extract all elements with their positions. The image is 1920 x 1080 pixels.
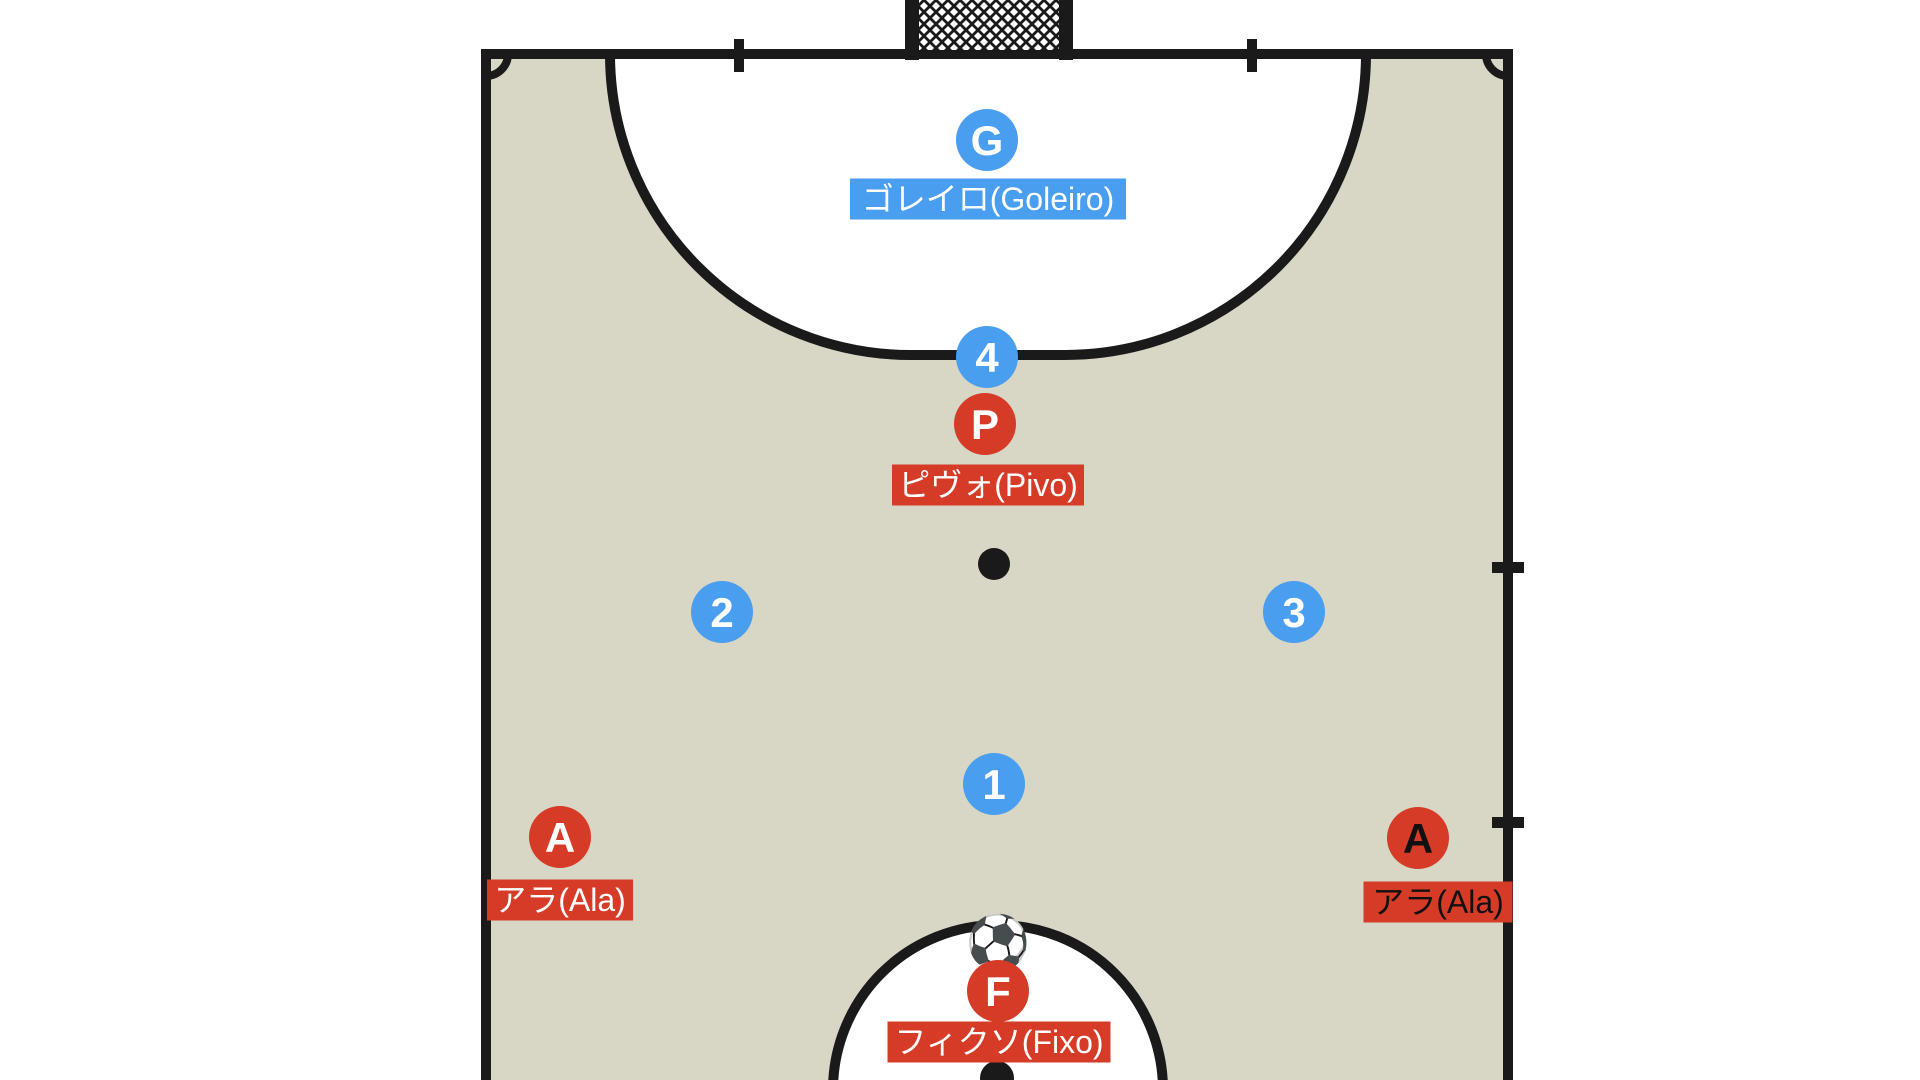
player-marker-letter: A <box>545 814 575 861</box>
center-spot <box>978 548 1010 580</box>
player-marker-number-2: 2 <box>691 581 753 643</box>
position-label-ala-left: アラ(Ala) <box>487 880 633 921</box>
touchline-tick-upper <box>1492 562 1524 573</box>
position-label-text: アラ(Ala) <box>1372 884 1504 920</box>
player-marker-letter: F <box>985 968 1011 1015</box>
position-label-text: ピヴォ(Pivo) <box>898 467 1078 503</box>
player-marker-number-1: 1 <box>963 753 1025 815</box>
position-label-text: アラ(Ala) <box>494 882 626 918</box>
player-marker-letter: G <box>971 117 1004 164</box>
player-marker-number-4: 4 <box>956 326 1018 388</box>
position-label-fixo: フィクソ(Fixo) <box>888 1022 1111 1063</box>
goal-net-mesh <box>919 0 1059 50</box>
player-marker-ala-right: A <box>1387 807 1449 869</box>
goal-line-tick-left <box>734 39 744 72</box>
player-marker-fixo: F <box>967 960 1029 1022</box>
player-marker-ala-left: A <box>529 806 591 868</box>
player-marker-goleiro: G <box>956 109 1018 171</box>
position-label-goleiro: ゴレイロ(Goleiro) <box>850 179 1126 220</box>
position-label-text: フィクソ(Fixo) <box>894 1024 1103 1060</box>
position-label-pivo: ピヴォ(Pivo) <box>892 465 1084 506</box>
goal-line-tick-right <box>1247 39 1257 72</box>
player-marker-number-3: 3 <box>1263 581 1325 643</box>
player-marker-letter: 3 <box>1282 589 1305 636</box>
player-marker-letter: 1 <box>982 761 1005 808</box>
player-marker-letter: 2 <box>710 589 733 636</box>
player-marker-letter: A <box>1403 815 1433 862</box>
touchline-tick-lower <box>1492 817 1524 828</box>
court-canvas: ⚽ G4P231AAF ゴレイロ(Goleiro)ピヴォ(Pivo)アラ(Ala… <box>0 0 1920 1080</box>
position-label-text: ゴレイロ(Goleiro) <box>862 181 1114 217</box>
player-marker-letter: P <box>971 401 999 448</box>
goal-post-right <box>1059 0 1073 60</box>
futsal-board: ⚽ G4P231AAF ゴレイロ(Goleiro)ピヴォ(Pivo)アラ(Ala… <box>0 0 1920 1080</box>
position-label-ala-right: アラ(Ala) <box>1364 882 1513 923</box>
player-marker-pivo: P <box>954 393 1016 455</box>
goal-post-left <box>905 0 919 60</box>
player-marker-letter: 4 <box>975 334 999 381</box>
